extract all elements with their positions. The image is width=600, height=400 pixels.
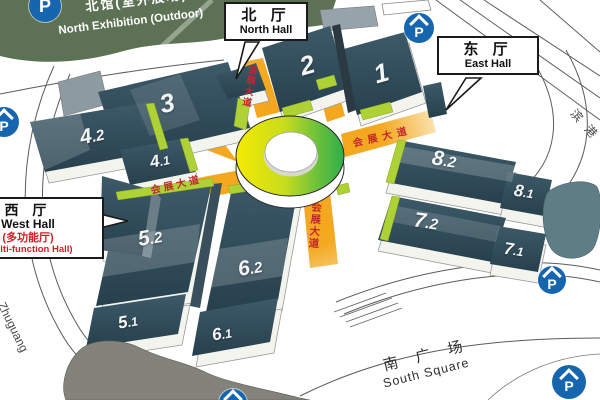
covered-parking-icon: P xyxy=(538,266,566,294)
east-hall-callout: 东 厅 East Hall xyxy=(437,36,539,75)
hall-4-1-label: 4.1 xyxy=(148,149,171,173)
hall-5-2-label: 5.2 xyxy=(136,224,164,252)
hall-8-2-label: 8.2 xyxy=(430,146,457,173)
hall-4-2-label: 4.2 xyxy=(78,122,107,151)
hall-7-2-label: 7.2 xyxy=(412,208,439,235)
north-hall-callout: 北 厅 North Hall xyxy=(224,2,308,41)
hall-6-1-label: 6.1 xyxy=(210,322,233,345)
covered-parking-icon: P xyxy=(404,13,434,43)
venue-map: 北馆(室外展场) North Exhibition (Outdoor) 1 2 … xyxy=(0,0,600,400)
roof-icon xyxy=(223,389,243,400)
central-ring xyxy=(236,116,344,208)
roof-icon xyxy=(409,14,429,34)
hall-8-1-label: 8.1 xyxy=(513,181,535,204)
west-hall-callout: 西 厅 West Hall (多功能厅) (Multi-function Hal… xyxy=(0,197,104,259)
roof-icon xyxy=(0,108,14,128)
roof-icon xyxy=(542,266,562,286)
hall-5-1-label: 5.1 xyxy=(116,310,139,333)
roof-icon xyxy=(559,368,579,388)
hall-6-2-label: 6.2 xyxy=(236,254,264,282)
hall-7-1-label: 7.1 xyxy=(503,239,525,262)
covered-parking-icon: P xyxy=(552,365,586,399)
